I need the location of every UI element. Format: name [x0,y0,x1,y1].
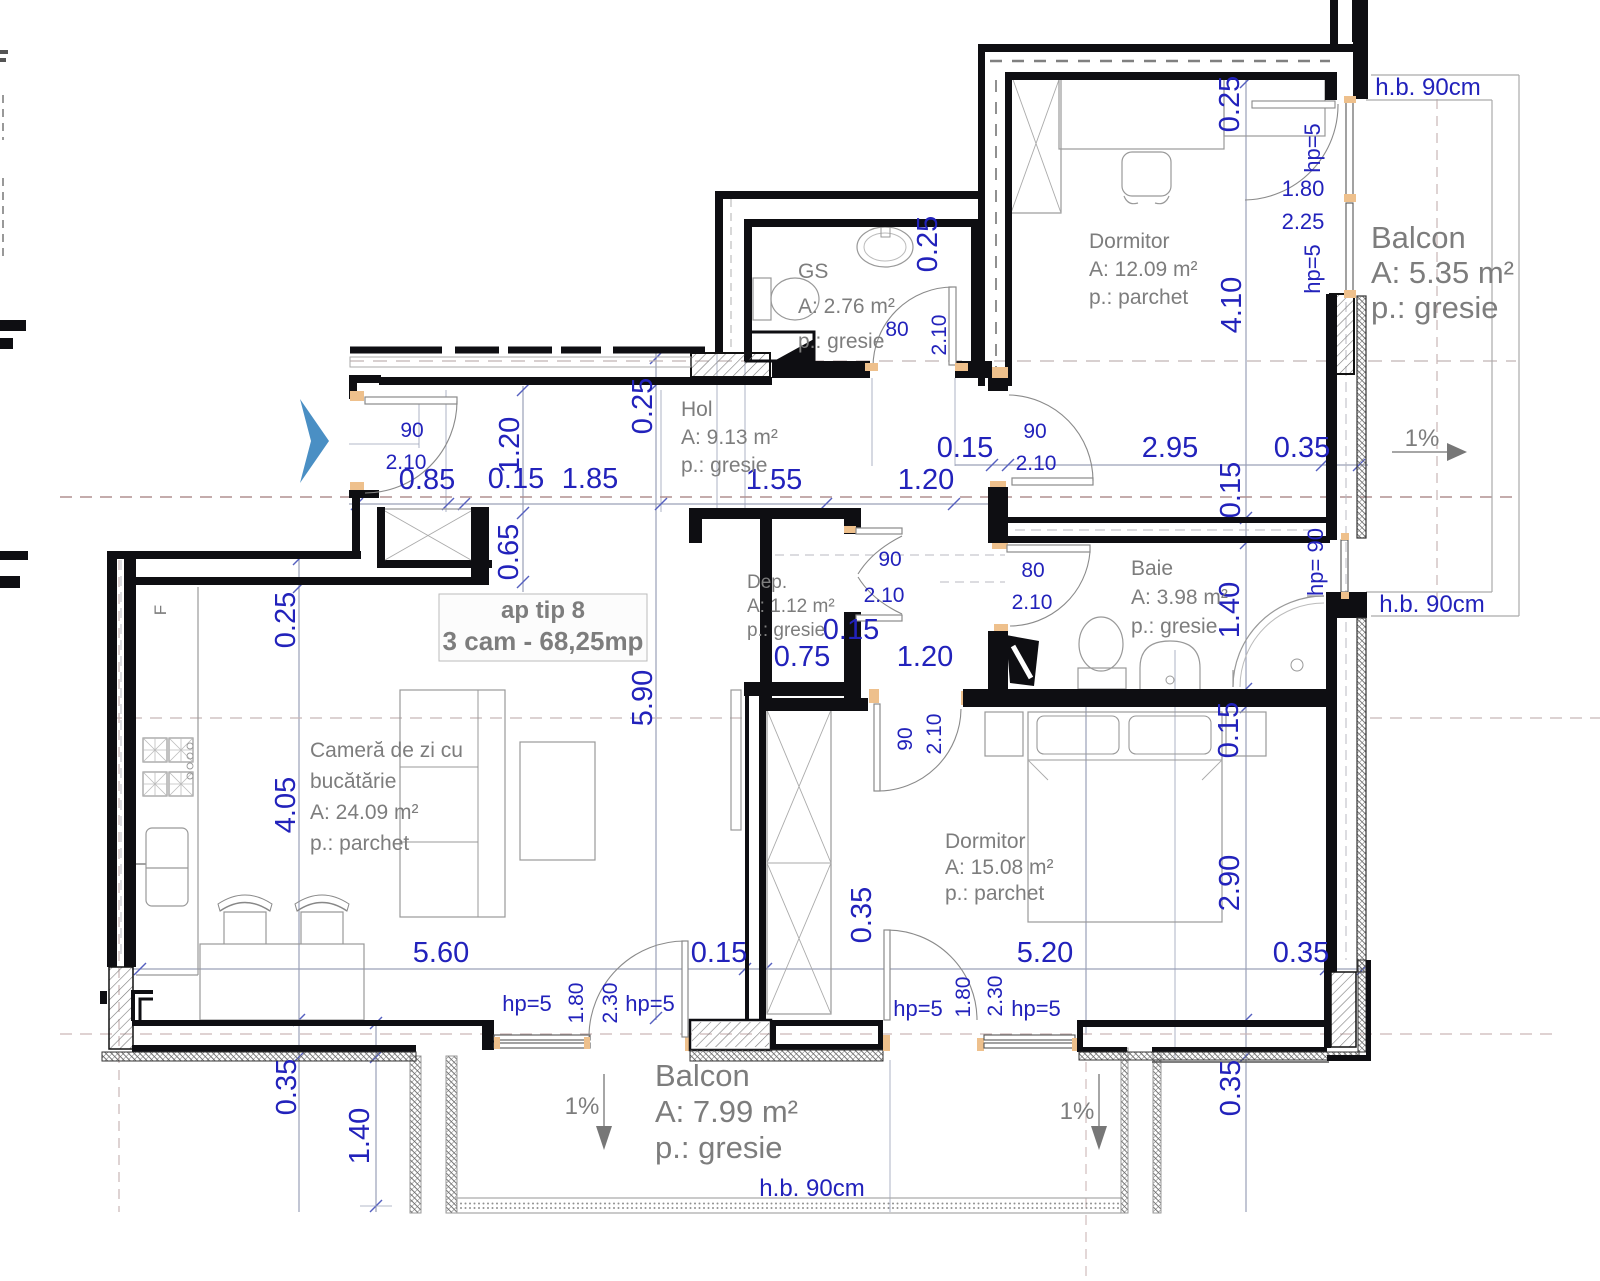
svg-text:90: 90 [878,548,901,571]
svg-text:4.05: 4.05 [270,777,302,833]
svg-text:2.10: 2.10 [1016,452,1057,475]
svg-text:3 cam - 68,25mp: 3 cam - 68,25mp [443,626,644,656]
svg-text:hp=5: hp=5 [1300,244,1325,294]
svg-text:A: 24.09 m²: A: 24.09 m² [310,801,419,824]
svg-text:0.35: 0.35 [1215,1060,1247,1116]
svg-text:0.15: 0.15 [1213,702,1245,758]
svg-text:90: 90 [894,727,917,750]
svg-text:2.10: 2.10 [928,315,951,356]
svg-text:0.25: 0.25 [1214,76,1246,132]
svg-text:Hol: Hol [681,398,713,421]
svg-text:Balcon: Balcon [1371,220,1466,255]
svg-text:1.80: 1.80 [565,983,588,1024]
svg-text:2.10: 2.10 [923,714,946,755]
svg-text:2.30: 2.30 [984,976,1007,1017]
svg-text:h.b. 90cm: h.b. 90cm [1379,591,1484,618]
svg-text:90: 90 [400,419,423,442]
svg-text:Dormitor: Dormitor [1089,230,1170,253]
svg-text:0.35: 0.35 [846,887,878,943]
svg-text:2.30: 2.30 [599,983,622,1024]
svg-text:p.: gresie: p.: gresie [1371,290,1499,325]
svg-text:0.15: 0.15 [1215,462,1247,518]
svg-text:2.10: 2.10 [1012,591,1053,614]
svg-text:F: F [151,605,170,615]
svg-text:2.10: 2.10 [864,584,905,607]
svg-text:1.80: 1.80 [1282,176,1325,201]
svg-text:5.60: 5.60 [413,937,469,969]
svg-text:80: 80 [1021,559,1044,582]
svg-text:A: 3.98 m²: A: 3.98 m² [1131,586,1228,609]
svg-text:Baie: Baie [1131,557,1173,580]
svg-text:1%: 1% [1060,1098,1095,1125]
svg-text:Cameră de zi cu: Cameră de zi cu [310,739,463,762]
svg-text:4.10: 4.10 [1216,277,1248,333]
svg-text:2.25: 2.25 [1282,209,1325,234]
svg-text:p.: parchet: p.: parchet [945,882,1044,905]
svg-text:p.: gresie: p.: gresie [655,1130,783,1165]
svg-text:ap tip 8: ap tip 8 [501,597,585,624]
svg-text:A: 7.99 m²: A: 7.99 m² [655,1094,798,1129]
svg-text:0.15: 0.15 [691,937,747,969]
svg-text:A: 9.13 m²: A: 9.13 m² [681,426,778,449]
svg-text:hp=5: hp=5 [1300,123,1325,173]
svg-text:hp=5: hp=5 [625,991,675,1016]
svg-text:p.: parchet: p.: parchet [310,832,409,855]
svg-text:0.15: 0.15 [937,432,993,464]
svg-text:0.25: 0.25 [627,378,659,434]
svg-text:1.85: 1.85 [562,463,618,495]
svg-text:hp=5: hp=5 [893,996,943,1021]
svg-text:p.: gresie: p.: gresie [1131,615,1217,638]
svg-text:1.20: 1.20 [898,464,954,496]
svg-text:A: 5.35 m²: A: 5.35 m² [1371,255,1514,290]
svg-text:A: 1.12 m²: A: 1.12 m² [747,596,835,617]
svg-text:hp= 90: hp= 90 [1303,528,1328,596]
svg-text:hp=5: hp=5 [502,991,552,1016]
svg-text:80: 80 [885,318,908,341]
svg-text:2.95: 2.95 [1142,432,1198,464]
svg-text:0.75: 0.75 [774,641,830,673]
svg-text:1%: 1% [565,1093,600,1120]
svg-text:Dep.: Dep. [747,572,787,593]
svg-text:p.: parchet: p.: parchet [1089,286,1188,309]
svg-text:0.25: 0.25 [912,216,944,272]
svg-text:0.35: 0.35 [271,1059,303,1115]
svg-text:1.20: 1.20 [494,417,526,473]
svg-text:bucătărie: bucătărie [310,770,396,793]
svg-text:1.80: 1.80 [952,977,975,1018]
svg-text:A: 12.09 m²: A: 12.09 m² [1089,258,1198,281]
svg-text:p.: gresie: p.: gresie [747,620,825,641]
svg-text:2.90: 2.90 [1214,855,1246,911]
svg-text:hp=5: hp=5 [1011,996,1061,1021]
svg-text:h.b. 90cm: h.b. 90cm [759,1175,864,1202]
svg-text:1%: 1% [1405,425,1440,452]
svg-text:0.15: 0.15 [823,614,879,646]
svg-text:0.35: 0.35 [1273,937,1329,969]
svg-text:Dormitor: Dormitor [945,830,1026,853]
svg-text:Balcon: Balcon [655,1058,750,1093]
svg-text:1.40: 1.40 [344,1108,376,1164]
svg-text:0.65: 0.65 [493,524,525,580]
svg-text:p.: gresie: p.: gresie [681,454,767,477]
svg-text:A: 15.08 m²: A: 15.08 m² [945,856,1054,879]
svg-text:1.20: 1.20 [897,641,953,673]
svg-text:0.25: 0.25 [270,592,302,648]
svg-text:h.b. 90cm: h.b. 90cm [1375,74,1480,101]
svg-text:90: 90 [1023,420,1046,443]
svg-text:p.: gresie: p.: gresie [798,330,884,353]
svg-text:2.10: 2.10 [386,451,427,474]
svg-text:GS: GS [798,260,828,283]
svg-text:5.90: 5.90 [627,670,659,726]
svg-text:0.35: 0.35 [1274,432,1330,464]
svg-text:5.20: 5.20 [1017,937,1073,969]
svg-text:A: 2.76 m²: A: 2.76 m² [798,295,895,318]
